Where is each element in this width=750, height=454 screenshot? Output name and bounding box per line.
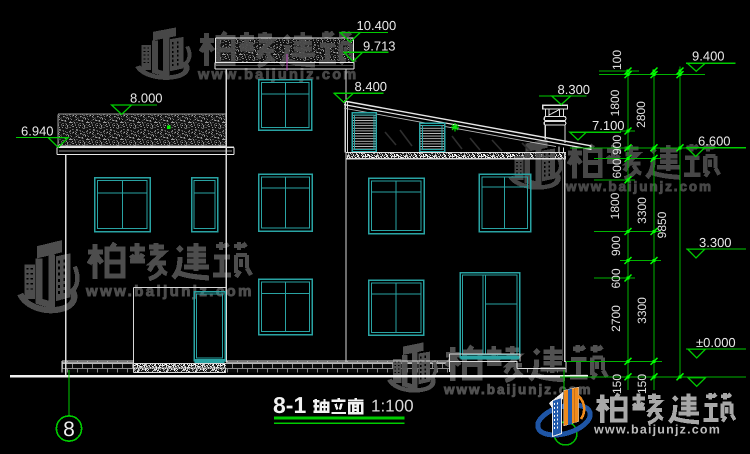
svg-text:1800: 1800 xyxy=(608,192,622,219)
svg-text:1:100: 1:100 xyxy=(371,397,414,416)
svg-text:8: 8 xyxy=(63,418,75,441)
svg-text:8.300: 8.300 xyxy=(558,82,591,97)
svg-text:900: 900 xyxy=(610,135,624,155)
svg-text:8.400: 8.400 xyxy=(355,79,388,94)
svg-text:3.300: 3.300 xyxy=(699,235,732,250)
svg-text:600: 600 xyxy=(609,268,623,288)
svg-text:150: 150 xyxy=(610,374,624,394)
svg-text:600: 600 xyxy=(610,158,624,178)
svg-text:2700: 2700 xyxy=(609,305,623,332)
svg-text:9850: 9850 xyxy=(655,211,669,238)
svg-text:100: 100 xyxy=(610,50,624,70)
svg-text:www.baijunjz.com: www.baijunjz.com xyxy=(593,423,721,437)
svg-text:9.400: 9.400 xyxy=(692,48,725,63)
svg-text:3300: 3300 xyxy=(635,297,649,324)
svg-text:6.940: 6.940 xyxy=(21,123,54,138)
svg-text:8.000: 8.000 xyxy=(130,91,163,106)
svg-text:3300: 3300 xyxy=(635,197,649,224)
svg-text:150: 150 xyxy=(635,374,649,394)
svg-text:±0.000: ±0.000 xyxy=(696,335,736,350)
svg-text:2800: 2800 xyxy=(634,101,648,128)
svg-text:7.100: 7.100 xyxy=(592,118,625,133)
svg-text:1800: 1800 xyxy=(608,89,622,116)
svg-text:www.baijunjz.com: www.baijunjz.com xyxy=(565,179,713,194)
svg-text:10.400: 10.400 xyxy=(357,18,397,33)
svg-text:900: 900 xyxy=(609,236,623,256)
svg-text:9.713: 9.713 xyxy=(363,38,396,53)
svg-text:8-1: 8-1 xyxy=(273,392,306,418)
svg-text:www.baijunjz.com: www.baijunjz.com xyxy=(85,283,254,300)
svg-text:6.600: 6.600 xyxy=(698,134,731,149)
